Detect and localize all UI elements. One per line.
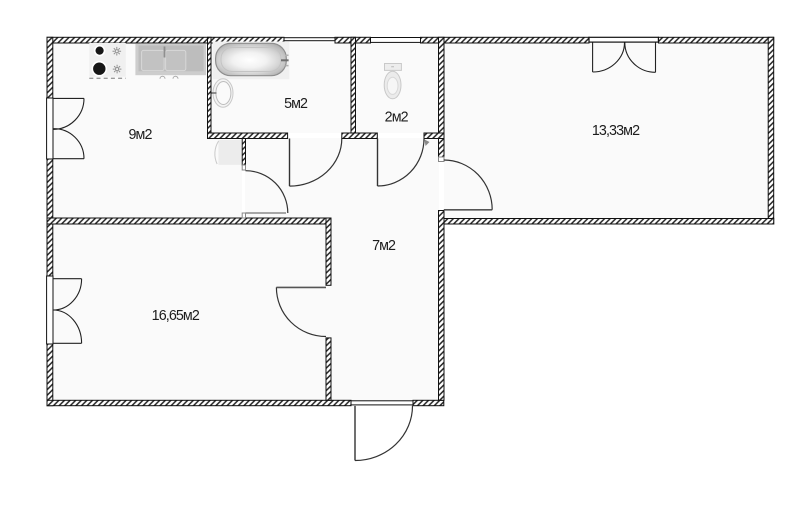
svg-text:7м2: 7м2	[372, 238, 396, 254]
svg-text:16,65м2: 16,65м2	[152, 308, 200, 324]
svg-text:9м2: 9м2	[128, 127, 152, 143]
svg-text:2м2: 2м2	[385, 109, 409, 125]
svg-text:5м2: 5м2	[284, 96, 308, 112]
svg-text:13,33м2: 13,33м2	[592, 123, 640, 139]
